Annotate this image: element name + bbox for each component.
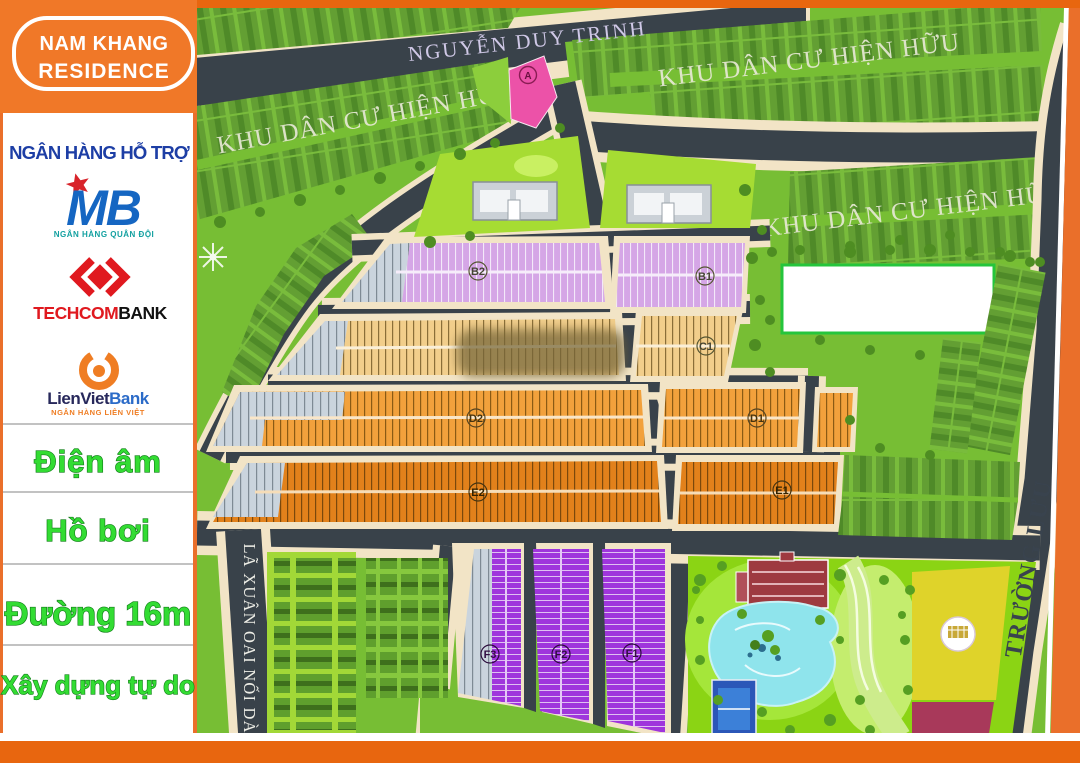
svg-text:MB: MB — [66, 180, 141, 236]
svg-text:D1: D1 — [750, 413, 764, 425]
svg-text:F2: F2 — [555, 649, 568, 661]
svg-text:NGÂN HÀNG LIÊN VIỆT: NGÂN HÀNG LIÊN VIỆT — [51, 408, 145, 417]
svg-text:A: A — [524, 71, 531, 82]
svg-text:NGÂN HÀNG QUÂN ĐỘI: NGÂN HÀNG QUÂN ĐỘI — [54, 230, 155, 239]
svg-text:E2: E2 — [471, 487, 484, 499]
svg-text:NGÂN HÀNG HỖ TRỢ: NGÂN HÀNG HỖ TRỢ — [9, 142, 190, 163]
svg-text:B1: B1 — [698, 271, 712, 283]
svg-text:Điện âm: Điện âm — [34, 444, 162, 479]
svg-text:Hồ bơi: Hồ bơi — [45, 513, 151, 548]
svg-text:E1: E1 — [775, 485, 788, 497]
svg-text:TECHCOMBANK: TECHCOMBANK — [33, 303, 167, 323]
svg-text:LÃ XUÂN OAI NỐI DÀI: LÃ XUÂN OAI NỐI DÀI — [240, 544, 259, 741]
svg-text:Xây dựng tự do: Xây dựng tự do — [1, 670, 195, 700]
svg-text:F1: F1 — [626, 648, 639, 660]
svg-text:RESIDENCE: RESIDENCE — [38, 60, 170, 83]
svg-text:LienVietBank: LienVietBank — [47, 389, 149, 408]
svg-text:D2: D2 — [469, 413, 483, 425]
svg-text:C1: C1 — [699, 341, 713, 353]
svg-text:F3: F3 — [484, 649, 497, 661]
svg-text:NAM KHANG: NAM KHANG — [40, 33, 169, 55]
svg-text:Đường 16m: Đường 16m — [5, 595, 192, 632]
svg-text:B2: B2 — [471, 266, 485, 278]
